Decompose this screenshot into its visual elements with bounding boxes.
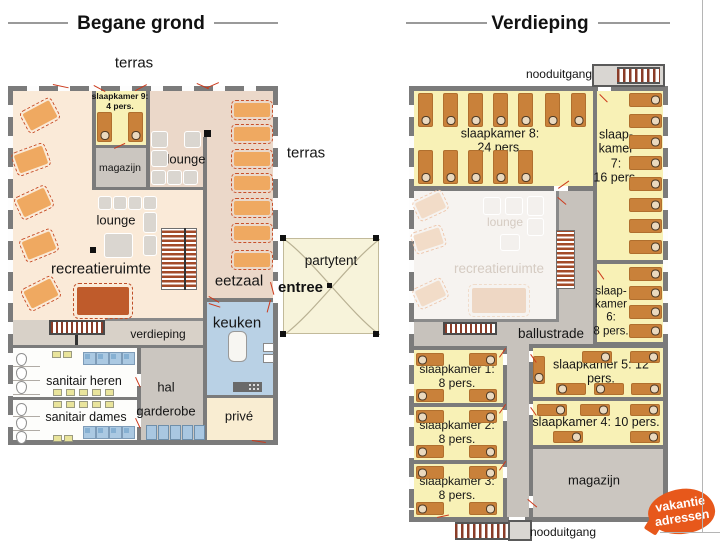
sink-icon [66,389,75,396]
locker-icon [170,425,181,440]
bed-icon [630,431,660,443]
sofa-icon [151,131,168,148]
lounge-lower-label: lounge [96,214,135,229]
group-table-icon [77,287,129,315]
pillow-icon [651,289,660,298]
table-icon [234,103,270,117]
bed-icon [571,93,586,127]
pillar-icon [90,247,96,253]
pillow-icon [496,116,505,125]
sink-icon [66,401,75,408]
pillow-icon [650,385,659,394]
bed-icon [629,135,662,149]
bed-icon [468,150,483,184]
pillow-icon [446,173,455,182]
sink-icon [63,351,72,358]
pillow-icon [471,173,480,182]
kitchen-appliance [263,343,274,352]
bed-icon [518,93,533,127]
slaapkamer6-label: slaap- kamer 6: 8 pers. [593,286,628,339]
sofa-icon [151,170,166,185]
fire-escape-stairs-top [617,67,660,84]
bed-icon [128,112,143,142]
pillow-icon [651,96,660,105]
stall-divider [13,416,40,417]
bed-icon [553,431,583,443]
pillow-icon [574,116,583,125]
railing-ground [49,320,105,335]
wall [529,445,668,449]
table-icon [234,253,270,267]
pillow-icon [651,270,660,279]
bed-icon [518,150,533,184]
partytent-label: partytent [305,253,358,269]
outer-wall-right-lower [273,310,278,445]
bed-icon [629,286,662,300]
title-rule-left-upper [406,22,487,24]
recreatieruimte-faded-label: recreatieruimte [454,261,544,277]
bed-icon [630,404,660,416]
garderobe-label: garderobe [136,405,195,420]
sink-icon [53,389,62,396]
shower-icon [83,352,96,365]
slaapkamer3-label: slaapkamer 3: 8 pers. [419,475,494,503]
wall-corner [409,510,414,522]
shower-icon [96,426,109,439]
slaapkamer2-label: slaapkamer 2: 8 pers. [419,419,494,447]
eetzaal-label: eetzaal [215,272,263,289]
faded-sofa-icon [505,197,523,215]
pillow-icon [421,116,430,125]
faded-sofa-icon [500,234,520,251]
pillow-icon [548,116,557,125]
locker-icon [194,425,205,440]
kitchen-island [228,331,247,362]
terras-top-label: terras [115,54,153,71]
bed-icon [629,324,662,338]
wall [409,186,597,191]
bed-icon [629,219,662,233]
shower-icon [96,352,109,365]
bed-icon [469,445,497,458]
sofa-icon [143,235,157,256]
upper-floor-title: Verdieping [491,13,588,35]
pillow-icon [651,243,660,252]
pillar-icon [327,283,332,288]
sink-icon [53,401,62,408]
pillow-icon [418,504,427,513]
sofa-icon [128,196,142,210]
pillow-icon [418,447,427,456]
locker-icon [146,425,157,440]
pillar-icon [280,331,286,337]
sink-icon [64,435,73,442]
nooduitgang-top-label: nooduitgang [526,68,592,82]
sofa-icon [167,170,182,185]
table-icon [234,176,270,190]
bed-icon [594,383,624,395]
faded-table-icon [472,288,526,313]
sanitair-heren-label: sanitair heren [46,374,122,388]
pillow-icon [599,406,608,415]
pillow-icon [131,131,140,140]
shower-icon [122,426,135,439]
bed-icon [493,93,508,127]
pillow-icon [649,353,658,362]
kitchen-appliance [263,354,274,363]
wall [409,460,507,464]
bed-icon [630,351,660,363]
pillow-icon [521,173,530,182]
prive-label: privé [225,410,253,425]
sink-icon [105,401,114,408]
wall [409,346,507,350]
recreatieruimte-label: recreatieruimte [51,260,151,277]
railing-ballustrade [443,322,497,335]
shower-icon [109,426,122,439]
stove-icon [233,382,262,392]
bed-icon [629,156,662,170]
bed-icon [629,177,662,191]
bed-icon [629,240,662,254]
faded-sofa-icon [483,197,501,215]
pillow-icon [421,173,430,182]
pillow-icon [100,131,109,140]
wall [503,350,507,517]
pillow-icon [651,138,660,147]
sink-icon [53,435,62,442]
sofa-icon [104,233,133,258]
floorplan-canvas: Begane grond Verdieping terras terras [0,0,725,545]
locker-icon [158,425,169,440]
sink-icon [92,401,101,408]
outer-wall-bottom [409,517,668,522]
pillow-icon [651,180,660,189]
doorway [503,354,507,365]
pillow-icon [418,468,427,477]
railing-post [75,335,78,345]
lounge-upper-label: lounge [166,153,205,168]
outer-wall-right [663,86,668,346]
sink-icon [52,351,61,358]
pillow-icon [486,355,495,364]
bed-icon [416,502,444,515]
bed-icon [631,383,661,395]
bed-icon [629,267,662,281]
bed-icon [416,389,444,402]
pillow-icon [651,327,660,336]
pillow-icon [572,433,581,442]
stall-divider [13,394,40,395]
outer-wall-right [273,86,278,310]
wall [105,318,203,321]
pillow-icon [558,385,567,394]
pillow-icon [471,116,480,125]
verdieping-stairs-label: verdieping [130,328,185,342]
fire-escape-platform-bottom [508,520,532,541]
pillow-icon [651,201,660,210]
bed-icon [469,410,497,423]
sofa-icon [98,196,112,210]
bed-icon [545,93,560,127]
pillow-icon [496,173,505,182]
wall-corner [409,86,414,98]
fire-escape-stairs-bottom [455,522,508,540]
bed-icon [418,93,433,127]
room-eetzaal [207,91,273,302]
outer-wall-bottom [8,440,278,445]
stall-divider [13,430,40,431]
page-border-bottom [660,532,720,533]
outer-wall-left [409,86,414,522]
faded-sofa-icon [527,196,544,216]
title-rule-right-upper [598,22,670,24]
slaapkamer1-label: slaapkamer 1: 8 pers. [419,363,494,391]
pillow-icon [601,353,610,362]
slaapkamer4-label: slaapkamer 4: 10 pers. [532,415,659,429]
lounge-faded-label: lounge [487,216,523,230]
bed-icon [418,150,433,184]
entree-label: entree [278,279,323,296]
wall-corner [8,86,20,91]
ballustrade-label: ballustrade [518,326,584,342]
bed-icon [443,150,458,184]
wall [207,395,273,398]
bed-icon [416,410,444,423]
bed-icon [629,93,662,107]
bed-icon [468,93,483,127]
ground-floor-title: Begane grond [77,13,205,35]
bed-icon [416,445,444,458]
bed-icon [469,502,497,515]
pillow-icon [418,391,427,400]
pillar-icon [280,235,286,241]
stall-divider [13,366,40,367]
bed-icon [469,353,497,366]
doorway [503,467,507,478]
pillow-icon [486,447,495,456]
table-icon [234,201,270,215]
table-icon [234,127,270,141]
shower-icon [109,352,122,365]
bed-icon [443,93,458,127]
pillar-icon [373,235,379,241]
staircase-ground [161,228,197,290]
pillow-icon [521,116,530,125]
bed-icon [416,466,444,479]
pillow-icon [535,373,544,382]
pillow-icon [651,308,660,317]
bed-icon [582,351,612,363]
pillow-icon [418,355,427,364]
sink-icon [79,401,88,408]
bed-icon [97,112,112,142]
bed-icon [469,389,497,402]
pillow-icon [649,433,658,442]
wall-corner [266,86,278,91]
shower-icon [122,352,135,365]
doorway [503,410,507,421]
magazijn-upper-label: magazijn [568,474,620,489]
table-icon [234,226,270,240]
slaapkamer9-label: slaapkamer 9: 4 pers. [92,91,149,111]
sink-icon [105,389,114,396]
pillow-icon [596,385,605,394]
locker-icon [182,425,193,440]
wall [92,187,207,190]
keuken-label: keuken [213,314,261,331]
sink-icon [79,389,88,396]
bed-icon [580,404,610,416]
wall [593,260,668,264]
pillow-icon [651,117,660,126]
stall-divider [13,380,40,381]
bed-icon [469,466,497,479]
wall [13,345,203,348]
sink-icon [92,389,101,396]
pillow-icon [486,468,495,477]
pillow-icon [446,116,455,125]
pillow-icon [418,412,427,421]
terras-right-label: terras [287,144,325,161]
stair-rail [184,228,186,290]
title-rule-right-ground [214,22,278,24]
pillar-icon [373,331,379,337]
pillow-icon [651,222,660,231]
outer-wall-left [8,86,13,445]
sofa-icon [113,196,127,210]
wall [409,403,507,407]
sofa-icon [143,212,157,233]
bed-icon [629,114,662,128]
bed-icon [416,353,444,366]
pillow-icon [556,406,565,415]
nooduitgang-bottom-label: nooduitgang [530,526,596,540]
bed-icon [556,383,586,395]
shower-icon [83,426,96,439]
hal-label: hal [157,381,174,396]
wall [529,397,668,401]
staircase-upper [556,230,575,289]
corridor-upper [507,348,529,517]
sanitair-dames-label: sanitair dames [45,410,126,424]
wall [13,397,137,400]
pillow-icon [651,159,660,168]
pillow-icon [486,412,495,421]
bed-icon [537,404,567,416]
sofa-icon [143,196,157,210]
bed-icon [629,198,662,212]
pillow-icon [486,391,495,400]
faded-sofa-icon [527,218,544,236]
bed-icon [629,305,662,319]
sofa-icon [184,131,201,148]
bed-icon [493,150,508,184]
wall [556,288,559,319]
pillow-icon [649,406,658,415]
wall [529,344,668,348]
page-border-right [702,0,703,532]
title-rule-left-ground [8,22,68,24]
table-icon [234,152,270,166]
pillow-icon [486,504,495,513]
pillar-icon [204,130,211,137]
magazijn-ground-label: magazijn [99,162,141,174]
sofa-icon [151,150,168,167]
sofa-icon [183,170,198,185]
